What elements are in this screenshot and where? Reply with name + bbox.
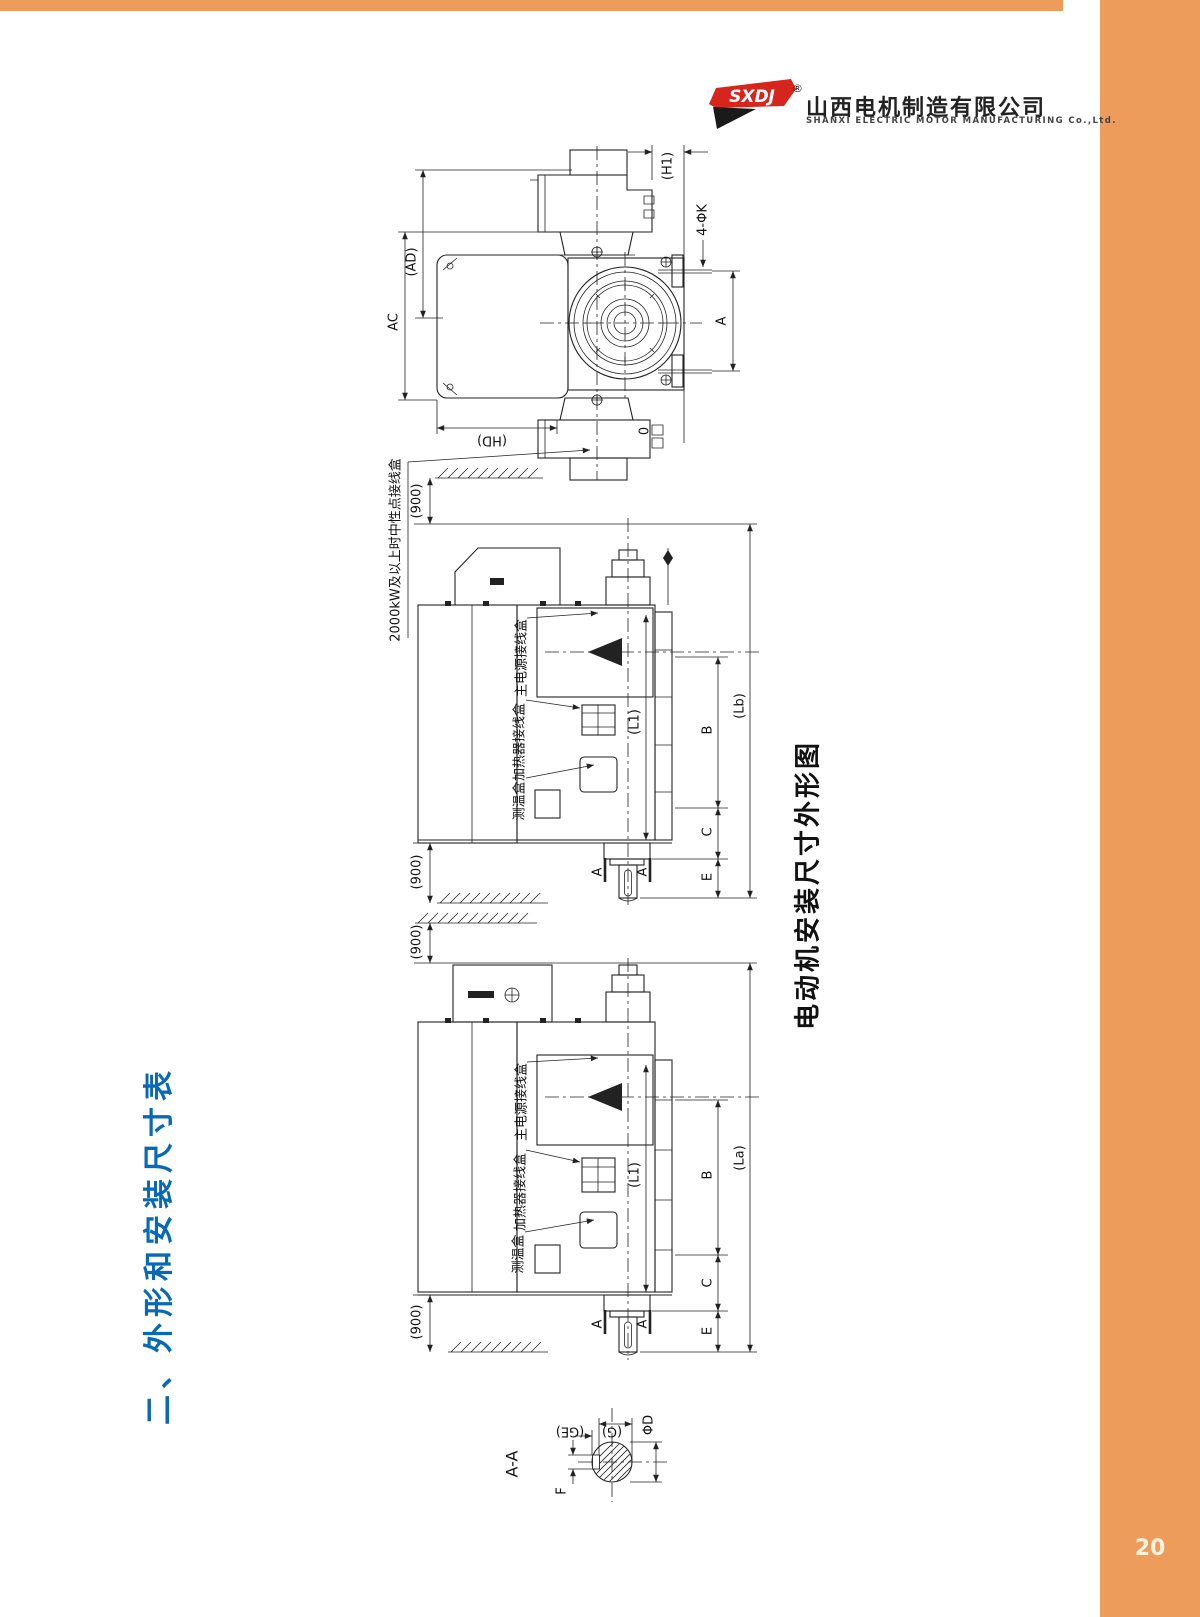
dim-900-1: (900)	[410, 484, 425, 519]
dim-e-bottom: E	[701, 1327, 716, 1335]
dim-ge: (GE)	[556, 1424, 584, 1439]
cut-a-right: A	[636, 867, 651, 876]
section-aa-drawing: (G) (GE) ΦD F A-A	[503, 1408, 669, 1502]
dim-h1: (H1)	[661, 152, 676, 180]
dim-g: (G)	[602, 1424, 622, 1439]
dim-900-3: (900)	[410, 925, 425, 960]
dim-900-4: (900)	[410, 1305, 425, 1340]
label-main-power-box: 主电源接线盒	[514, 619, 530, 697]
side-view-top-drawing: A A 主电源接线盒 加热器接线盒 测温盒 (L1) B C E (Lb) (9…	[410, 518, 761, 905]
label-temp-box: 测温盒	[512, 781, 528, 820]
section-view-title: A-A	[503, 1450, 522, 1477]
dim-a-endview: A	[715, 316, 730, 325]
dim-zero: 0	[638, 427, 653, 435]
cut-a-left-2: A	[591, 1319, 606, 1328]
label-main-power-box-2: 主电源接线盒	[514, 1063, 530, 1141]
dim-lb: (Lb)	[733, 693, 748, 719]
label-heater-box-2: 加热器接线盒	[513, 1153, 529, 1231]
dim-la: (La)	[733, 1145, 748, 1170]
end-view-drawing: 0 (H1) 4-ΦK A AC (AD) (HD)	[387, 145, 741, 480]
dim-b-top: B	[701, 726, 716, 735]
dim-ad: (AD)	[405, 247, 420, 276]
dim-e-top: E	[701, 873, 716, 881]
dim-ac: AC	[387, 313, 402, 331]
cut-a-right-2: A	[636, 1319, 651, 1328]
dim-l1-top: (L1)	[628, 709, 643, 735]
drawings-canvas: 0 (H1) 4-ΦK A AC (AD) (HD)	[0, 0, 1100, 1617]
dim-c-top: C	[701, 827, 716, 836]
dim-phi-d: ΦD	[642, 1415, 657, 1435]
dim-4-phi-k: 4-ΦK	[696, 204, 711, 236]
dim-hd: (HD)	[477, 433, 507, 448]
right-accent-band	[1100, 0, 1200, 1617]
catalog-page: 20 SXDJ ® 山西电机制造有限公司 SHANXI ELECTRIC MOT…	[0, 0, 1200, 1617]
note-neutral-box: 2000kW及以上时中性点接线盒	[388, 458, 404, 641]
label-temp-box-2: 测温盒	[511, 1234, 527, 1273]
dim-b-bottom: B	[701, 1171, 716, 1180]
cut-a-left: A	[591, 867, 606, 876]
dim-900-2: (900)	[410, 855, 425, 890]
dim-l1-bottom: (L1)	[628, 1162, 643, 1188]
side-view-bottom-drawing: (900)	[410, 913, 761, 1360]
label-heater-box: 加热器接线盒	[512, 703, 528, 781]
dim-f: F	[555, 1487, 570, 1494]
page-number: 20	[1128, 1536, 1172, 1561]
dim-c-bottom: C	[701, 1278, 716, 1287]
